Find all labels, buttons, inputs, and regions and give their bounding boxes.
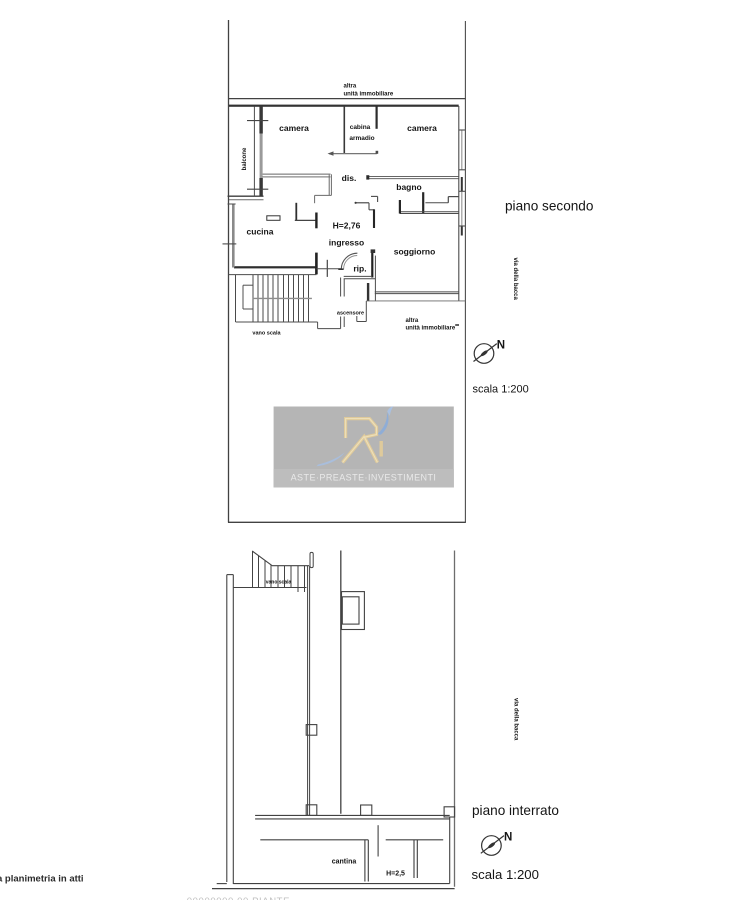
svg-text:N: N <box>497 340 505 352</box>
svg-text:camera: camera <box>279 123 309 133</box>
svg-text:balcone: balcone <box>242 147 248 170</box>
svg-text:bagno: bagno <box>396 182 422 192</box>
svg-text:camera: camera <box>407 123 437 133</box>
svg-text:soggiorno: soggiorno <box>394 247 436 257</box>
svg-text:unità immobiliare: unità immobiliare <box>344 92 394 98</box>
svg-text:via della bacca: via della bacca <box>513 698 519 741</box>
svg-text:ingresso: ingresso <box>329 238 364 248</box>
svg-text:piano secondo: piano secondo <box>505 199 593 214</box>
svg-text:dis.: dis. <box>342 173 357 183</box>
svg-text:via della bacca: via della bacca <box>512 258 518 301</box>
svg-text:cucina: cucina <box>247 227 274 237</box>
svg-text:scala 1:200: scala 1:200 <box>472 867 539 882</box>
svg-text:. . . . . . . . . . 00000000 0: . . . . . . . . . . 00000000 00 PIANTE <box>122 896 290 900</box>
svg-text:scala 1:200: scala 1:200 <box>473 384 529 396</box>
svg-text:unità immobiliare: unità immobiliare <box>406 326 456 332</box>
svg-text:cantina: cantina <box>332 859 357 866</box>
svg-text:vano scala: vano scala <box>252 331 281 337</box>
svg-text:ASTE·PREASTE·INVESTIMENTI: ASTE·PREASTE·INVESTIMENTI <box>291 473 437 483</box>
svg-text:armadio: armadio <box>349 135 374 142</box>
svg-text:H=2,76: H=2,76 <box>333 221 361 231</box>
svg-text:N: N <box>504 832 512 844</box>
svg-text:rip.: rip. <box>353 264 366 274</box>
svg-text:a planimetria in atti: a planimetria in atti <box>0 874 84 885</box>
svg-text:cabina: cabina <box>350 124 371 131</box>
svg-text:vano scala: vano scala <box>266 580 292 586</box>
svg-text:altra: altra <box>344 84 357 90</box>
svg-text:H=2,5: H=2,5 <box>386 871 405 878</box>
svg-text:ascensore: ascensore <box>337 311 364 317</box>
svg-text:altra: altra <box>406 318 419 324</box>
svg-text:piano interrato: piano interrato <box>472 803 559 818</box>
